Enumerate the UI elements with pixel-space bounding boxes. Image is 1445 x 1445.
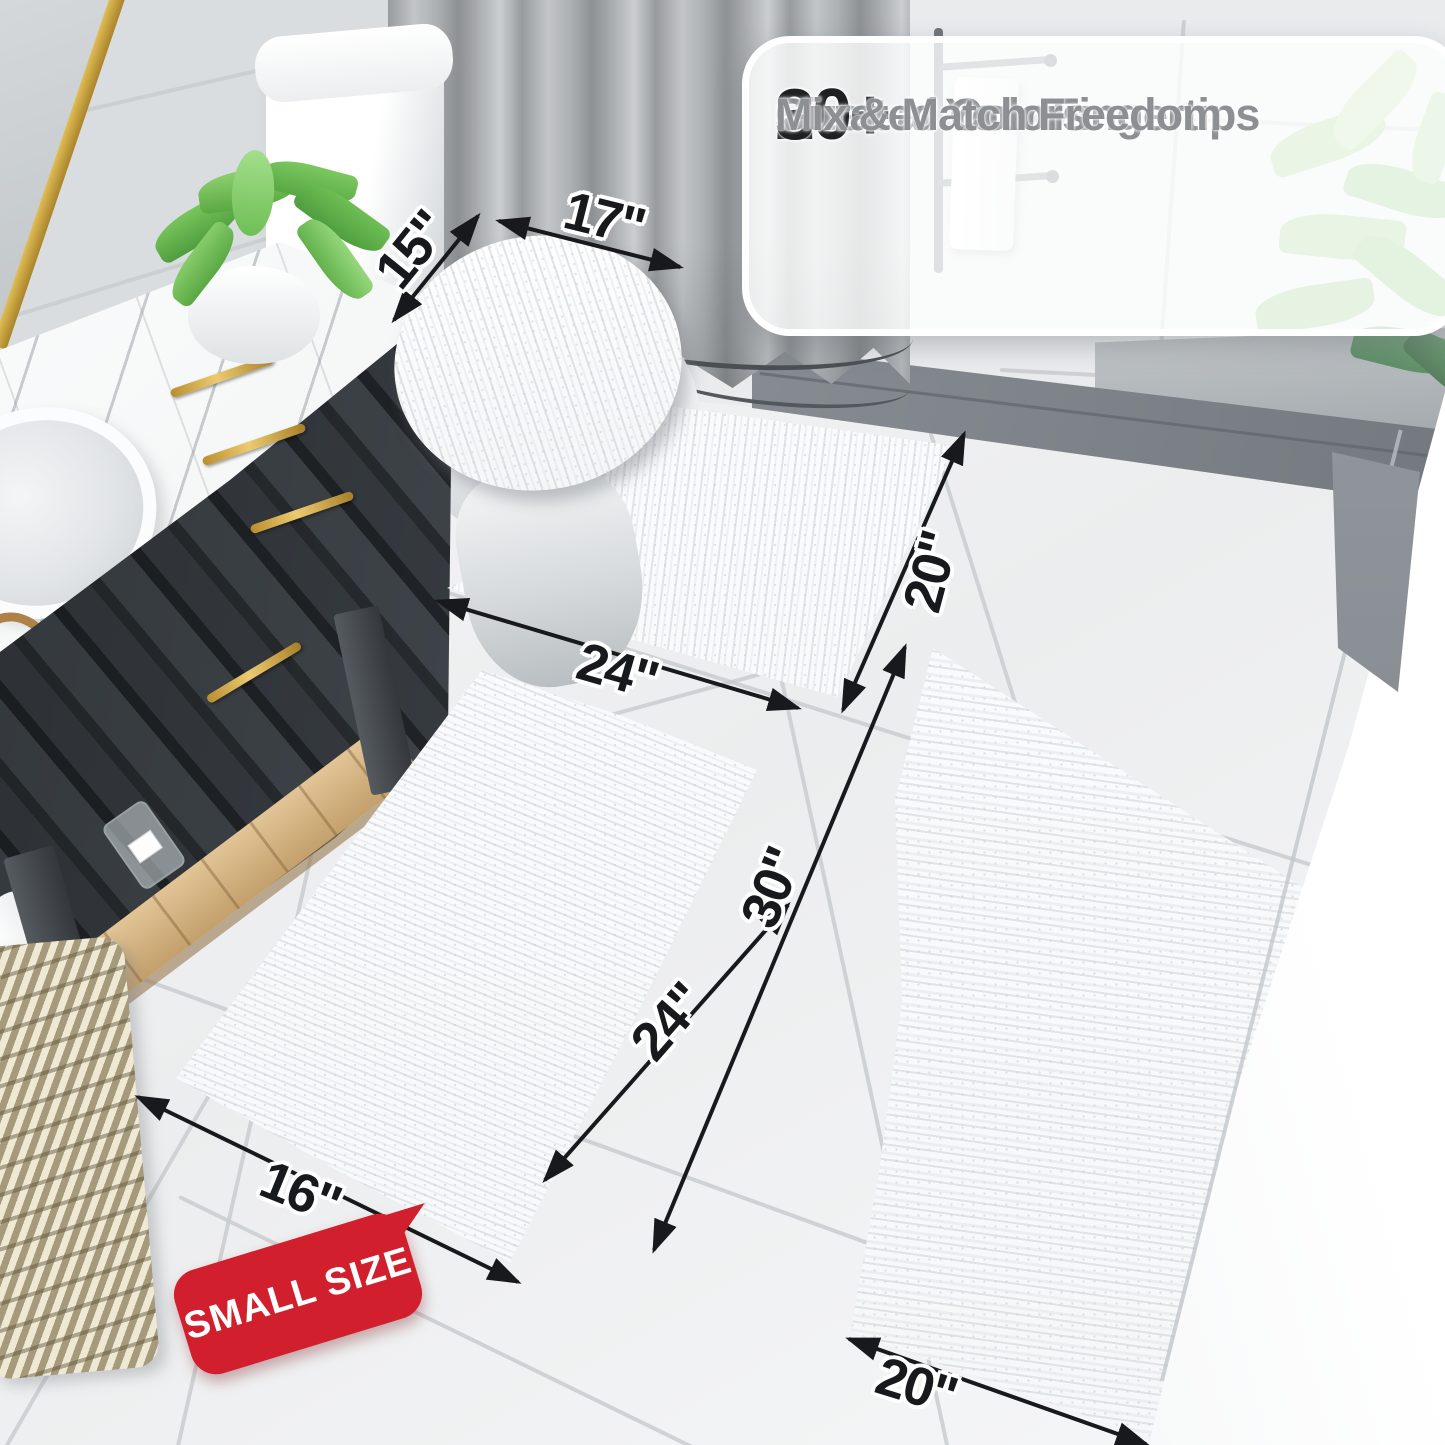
product-image-bathroom-rug-set: ✓ 20+ Sizes at Your Fingertips ✓ 30+ Cur…	[0, 0, 1445, 1445]
dimension-arrows	[0, 0, 1445, 1445]
dimension-arrow-large-rug-length	[654, 647, 905, 1250]
